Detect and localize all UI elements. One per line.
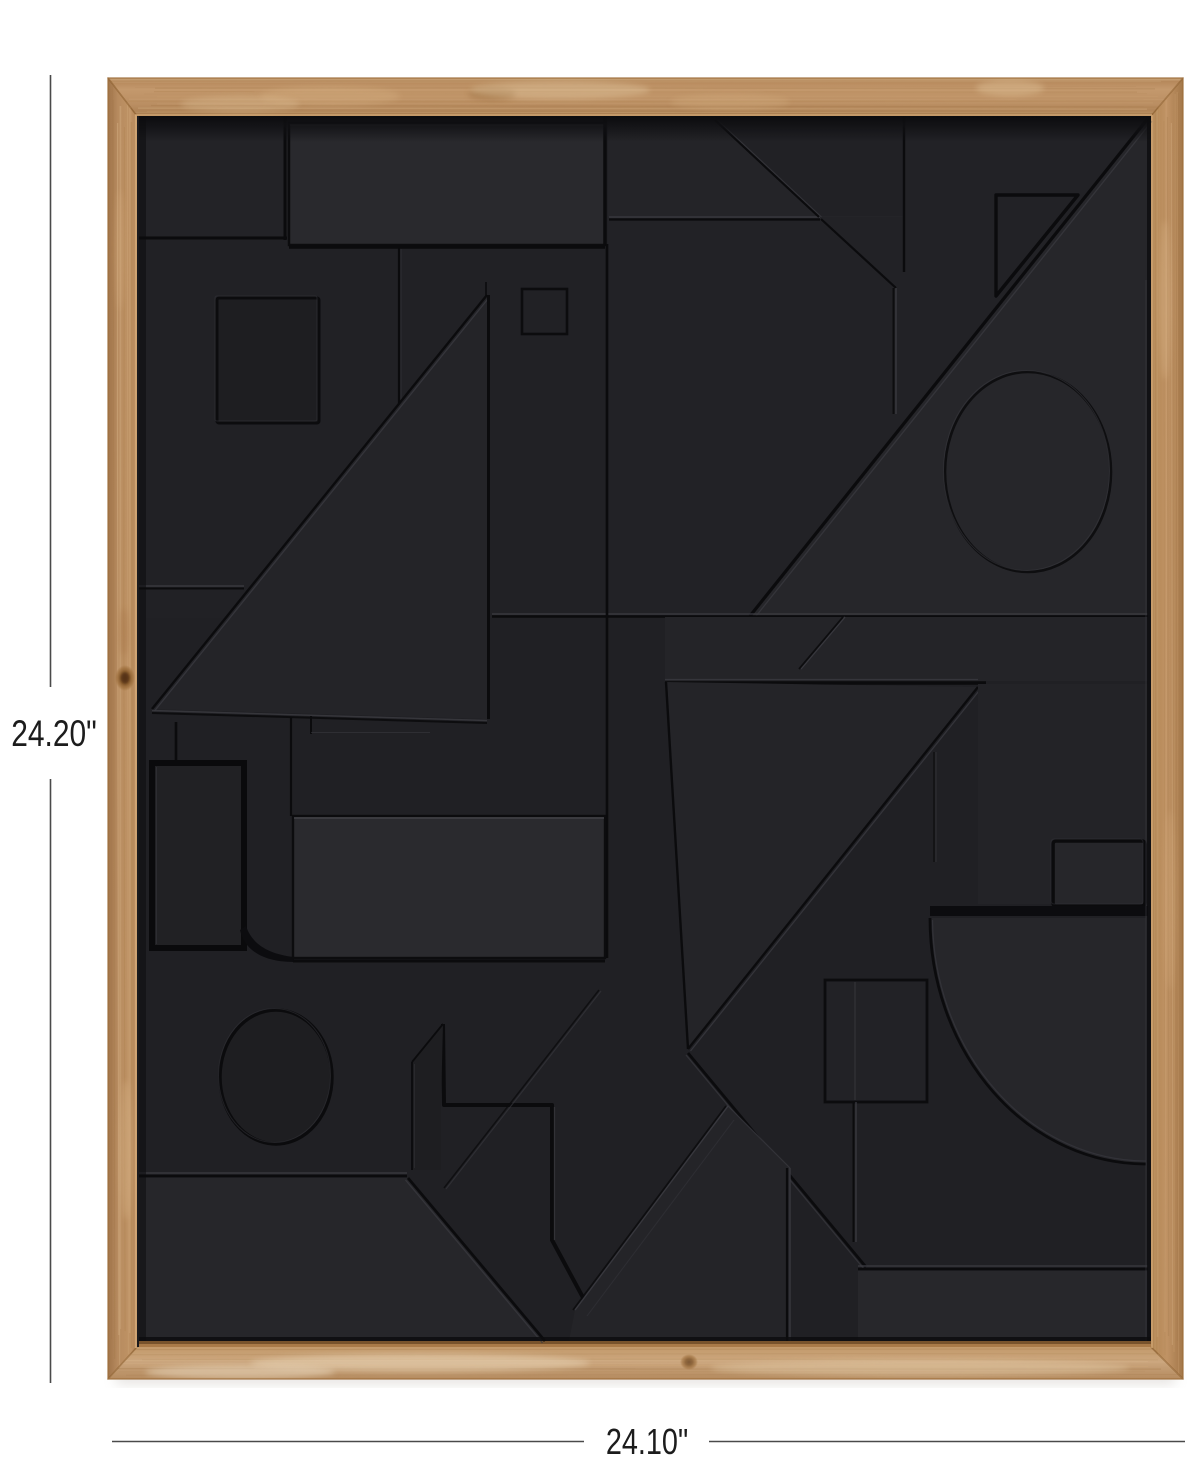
svg-text:24.20": 24.20" [11,714,97,755]
svg-text:24.10": 24.10" [606,1421,688,1462]
